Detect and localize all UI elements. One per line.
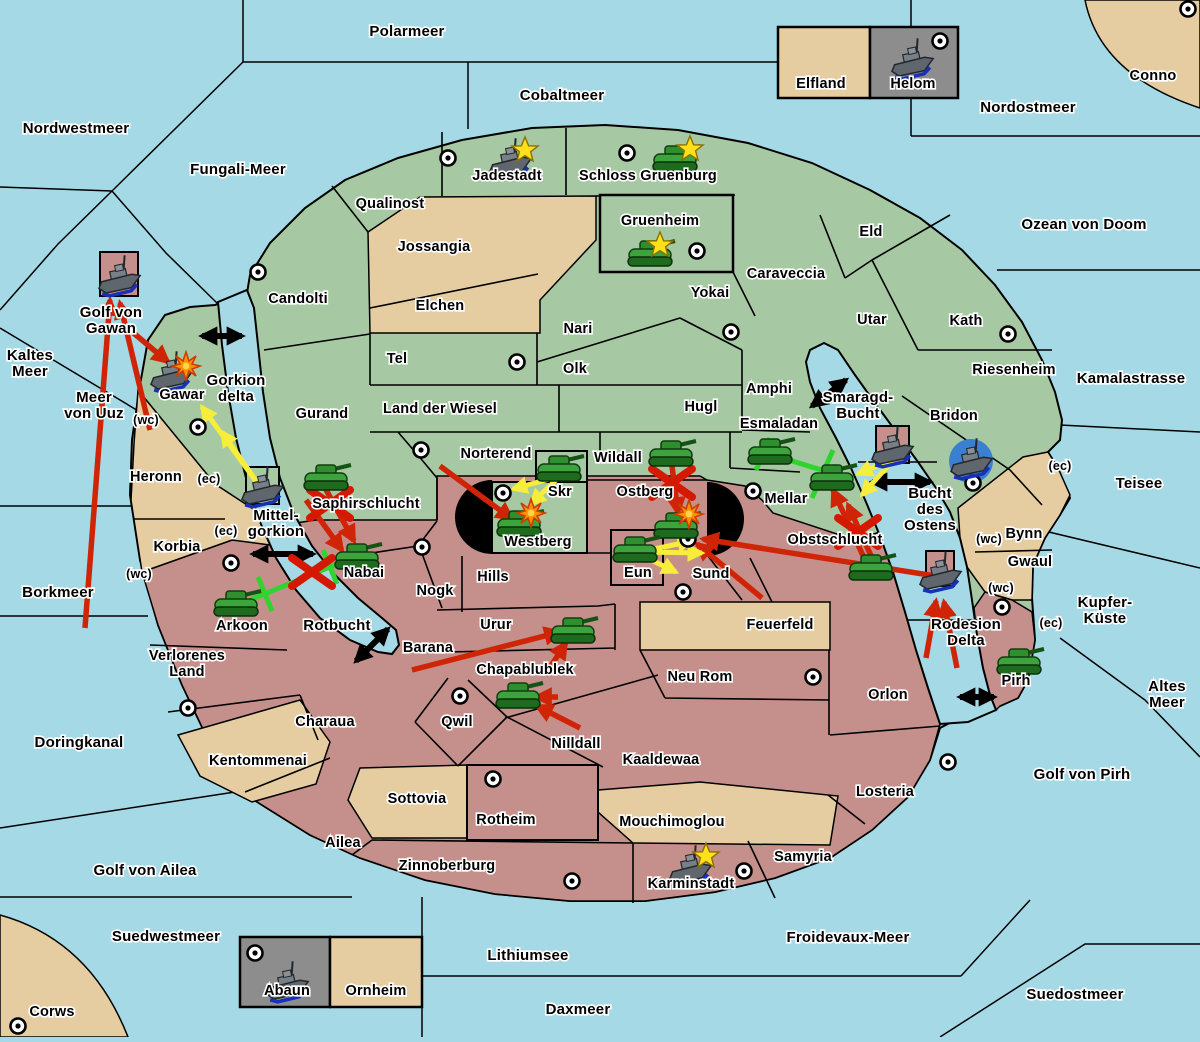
ozean-von-doom-label: Ozean von Doom [1021,216,1146,233]
riesenheim-label: Riesenheim [972,362,1055,378]
sottovia-label: Sottovia [388,791,448,807]
losteria-label: Losteria [856,784,915,800]
saphirschlucht-label: Saphirschlucht [312,496,420,512]
hills-label: Hills [477,569,509,585]
kupfer-kueste-label: Kupfer-Küste [1078,594,1133,627]
tel-label: Tel [387,351,407,367]
korbia-label: Korbia [153,539,201,555]
battle-explosion-1 [517,499,545,527]
bridon-label: Bridon [930,408,978,424]
zinnoberburg-label: Zinnoberburg [399,858,496,874]
bynn-label: Bynn [1005,526,1042,542]
conno-label: Conno [1130,68,1177,84]
city-marker-22 [737,864,752,879]
city-marker-2 [251,265,266,280]
rotheim-label: Rotheim [476,812,535,828]
coast-tag-5-label: (wc) [976,532,1002,546]
city-marker-21 [565,874,580,889]
wargame-map[interactable]: PolarmeerCobaltmeerNordostmeerNordwestme… [0,0,1200,1037]
city-marker-11 [414,443,429,458]
eun-label: Eun [624,565,652,581]
cobaltmeer-label: Cobaltmeer [520,87,605,104]
city-marker-18 [181,701,196,716]
city-marker-8 [1001,327,1016,342]
coast-tag-6-label: (wc) [988,581,1014,595]
city-marker-27 [11,1019,26,1034]
olk-label: Olk [563,361,588,377]
lithiumsee-label: Lithiumsee [487,947,568,964]
heronn-label: Heronn [130,469,182,485]
city-marker-4 [620,146,635,161]
city-marker-5 [690,244,705,259]
city-marker-7 [510,355,525,370]
pirh-label: Pirh [1002,673,1031,689]
suedostmeer-label: Suedostmeer [1026,986,1123,1003]
sund-label: Sund [692,566,729,582]
gawar-label: Gawar [159,387,204,403]
nogk-label: Nogk [416,583,454,599]
eld-label: Eld [859,224,882,240]
nari-label: Nari [563,321,592,337]
kaltes-meer-label: KaltesMeer [7,347,53,380]
city-marker-24 [941,755,956,770]
karminstadt-label: Karminstadt [648,876,735,892]
charaua-label: Charaua [295,714,355,730]
kentommenai-label: Kentommenai [209,753,307,769]
fungali-meer-label: Fungali-Meer [190,161,286,178]
schloss-gruenburg-label: Schloss Gruenburg [579,168,717,184]
froidevaux-meer-label: Froidevaux-Meer [786,929,909,946]
qwil-label: Qwil [441,714,472,730]
mittel-gorkion-label: Mittel-gorkion [248,507,304,540]
samyria-label: Samyria [774,849,833,865]
mouchimoglou-label: Mouchimoglou [619,814,725,830]
city-marker-25 [995,600,1010,615]
city-marker-16 [191,420,206,435]
neu-rom-label: Neu Rom [667,669,732,685]
city-marker-6 [724,325,739,340]
feuerfeld-label: Feuerfeld [746,617,813,633]
polarmeer-label: Polarmeer [369,23,444,40]
golf-von-pirh-label: Golf von Pirh [1034,766,1131,783]
arkoon-label: Arkoon [216,618,268,634]
elfland-label: Elfland [796,76,846,92]
city-marker-19 [453,689,468,704]
kamalastrasse-label: Kamalastrasse [1077,370,1186,387]
nordwestmeer-label: Nordwestmeer [23,120,130,137]
battle-explosion-0 [172,352,200,380]
city-marker-3 [441,151,456,166]
golf-von-ailea-label: Golf von Ailea [93,862,197,879]
city-marker-26 [248,946,263,961]
mellar-label: Mellar [764,491,807,507]
battle-explosion-2 [675,500,703,528]
city-marker-1 [933,34,948,49]
yokai-label: Yokai [691,285,730,301]
elchen-label: Elchen [416,298,465,314]
city-marker-10 [746,484,761,499]
westberg-label: Westberg [504,534,571,550]
city-marker-14 [676,585,691,600]
coast-tag-1-label: (ec) [197,472,220,486]
coast-tag-4-label: (ec) [1048,459,1071,473]
jossangia-label: Jossangia [398,239,471,255]
city-marker-17 [224,556,239,571]
hugl-label: Hugl [684,399,717,415]
city-marker-20 [486,772,501,787]
urur-label: Urur [480,617,512,633]
doringkanal-label: Doringkanal [35,734,124,751]
coast-tag-0-label: (wc) [133,413,159,427]
coast-tag-7-label: (ec) [1039,616,1062,630]
amphi-label: Amphi [746,381,792,397]
nilldall-label: Nilldall [551,736,600,752]
candolti-label: Candolti [268,291,328,307]
wildall-label: Wildall [594,450,642,466]
orlon-label: Orlon [868,687,908,703]
chapablublek-label: Chapablublek [476,662,574,678]
norterend-label: Norterend [460,446,531,462]
corws-label: Corws [29,1004,74,1020]
jadestadt-label: Jadestadt [472,168,542,184]
altes-meer-label: AltesMeer [1148,678,1186,711]
golf-von-gawan-label: Golf vonGawan [80,304,142,337]
ailea-label: Ailea [325,835,361,851]
helom-label: Helom [890,76,935,92]
city-marker-0 [1181,2,1196,17]
ostberg-label: Ostberg [617,484,674,500]
qualinost-label: Qualinost [356,196,425,212]
gwaul-label: Gwaul [1008,554,1053,570]
gurand-label: Gurand [296,406,349,422]
city-marker-15 [415,540,430,555]
coast-tag-2-label: (ec) [214,524,237,538]
kath-label: Kath [949,313,982,329]
abaun-label: Abaun [264,983,310,999]
utar-label: Utar [857,312,887,328]
teisee-label: Teisee [1116,475,1163,492]
esmaladan-label: Esmaladan [740,416,818,432]
nordostmeer-label: Nordostmeer [980,99,1076,116]
obstschlucht-label: Obstschlucht [787,532,882,548]
skr-label: Skr [548,484,572,500]
city-marker-12 [496,486,511,501]
caraveccia-label: Caraveccia [747,266,826,282]
gruenheim-label: Gruenheim [621,213,699,229]
city-marker-23 [806,670,821,685]
borkmeer-label: Borkmeer [22,584,94,601]
coast-tag-3-label: (wc) [126,567,152,581]
rotbucht-label: Rotbucht [303,617,370,634]
ornheim-label: Ornheim [345,983,406,999]
suedwestmeer-label: Suedwestmeer [112,928,220,945]
nabai-label: Nabai [344,565,385,581]
daxmeer-label: Daxmeer [546,1001,611,1018]
map-canvas[interactable]: PolarmeerCobaltmeerNordostmeerNordwestme… [0,0,1200,1037]
kaaldewaa-label: Kaaldewaa [623,752,700,768]
barana-label: Barana [403,640,454,656]
land-der-wiesel-label: Land der Wiesel [383,401,497,417]
